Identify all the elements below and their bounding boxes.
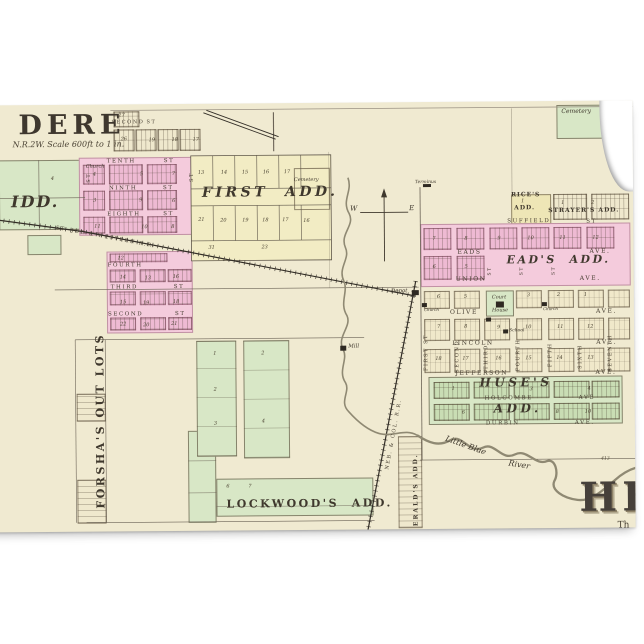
map-label: EIGHTH	[107, 212, 140, 218]
map-label: 12	[118, 256, 124, 261]
map-label: 5	[140, 172, 143, 177]
map-label: 13	[145, 276, 151, 281]
map-label: ST	[174, 285, 185, 291]
building-marker	[412, 290, 419, 295]
map-label: 22	[120, 322, 126, 327]
map-label: 12	[592, 236, 598, 241]
map-label: Depot	[391, 289, 408, 295]
building-marker	[486, 318, 491, 322]
map-label: 9	[139, 198, 142, 203]
map-label: 17	[284, 170, 290, 175]
map-label: HOLCOMBE	[485, 396, 533, 402]
map-label: RICE'S	[511, 192, 540, 198]
building-marker	[340, 346, 346, 351]
compass-west-label: W	[350, 205, 357, 213]
map-label: 13	[587, 356, 593, 361]
map-label: Church	[424, 308, 439, 312]
map-label: ADD.	[514, 205, 535, 211]
map-label: 3	[93, 199, 96, 204]
map-label: 18	[172, 138, 178, 143]
map-label: 20	[143, 323, 149, 328]
map-label: 10	[141, 225, 147, 230]
map-label: 15	[242, 170, 248, 175]
map-label: 10	[527, 236, 533, 241]
map-label: AVE.	[575, 421, 595, 427]
building-marker	[422, 303, 427, 307]
greeting-card: IDD.FIRST ADD.EAD'S ADD.HUSE'SADD.LOCKWO…	[0, 100, 636, 532]
map-label: AVE.	[596, 309, 617, 315]
map-label: STRAYER'S ADD.	[548, 208, 619, 215]
map-label: 1	[521, 199, 524, 204]
railroad-nebcol	[366, 281, 418, 531]
map-label: 12	[587, 325, 593, 330]
map-label: 11	[559, 236, 565, 241]
map-label: 18	[435, 357, 441, 362]
map-label: Court	[492, 295, 507, 300]
map-label: 6	[433, 265, 436, 270]
map-label: 4	[93, 173, 96, 178]
map-label: SIXTH	[578, 344, 583, 369]
map-label: 15	[525, 356, 531, 361]
map-label: 19	[149, 138, 155, 143]
map-label: 16	[495, 356, 501, 361]
map-label: 16	[173, 275, 179, 280]
map-label: FOURTH	[108, 263, 143, 269]
map-label: OLIVE	[450, 310, 478, 316]
map-label: 2	[261, 351, 264, 356]
map-label: 6	[437, 295, 440, 300]
map-label: 3	[214, 422, 217, 427]
map-label: IDD.	[11, 194, 59, 210]
map-label: ERALD'S ADD.	[413, 453, 420, 526]
map-label: 14	[221, 171, 227, 176]
map-label: UNION	[456, 277, 487, 283]
map-label: 6	[172, 199, 175, 204]
map-label: 17	[462, 357, 468, 362]
map-label: NINTH	[109, 186, 137, 192]
map-label: HUSE'S	[479, 376, 552, 389]
map-label: Cemetery	[561, 109, 591, 115]
map-label: School	[509, 329, 524, 334]
map-label: ST	[586, 220, 597, 226]
map-label: 19	[242, 218, 248, 223]
map-label: 7	[437, 325, 440, 330]
building-marker	[542, 302, 547, 306]
map-label: 4	[262, 419, 265, 424]
map-title: DERE	[18, 109, 125, 141]
map-label: 5	[465, 265, 468, 270]
map-label: 1	[561, 201, 564, 206]
map-label: SEVENTH	[608, 334, 613, 372]
map-label: FORSHA'S OUT LOTS	[94, 333, 106, 509]
map-label: ST	[190, 172, 195, 182]
map-label: 1	[452, 387, 455, 392]
map-label: ST	[175, 312, 186, 318]
map-label: 1	[584, 293, 587, 298]
map-label: 14	[120, 275, 126, 280]
map-sheet: IDD.FIRST ADD.EAD'S ADD.HUSE'SADD.LOCKWO…	[0, 100, 636, 532]
map-label: 21	[198, 218, 204, 223]
map-label: 8	[556, 410, 559, 415]
map-label: 8	[171, 225, 174, 230]
map-label: 7	[172, 172, 175, 177]
map-label: SECOND	[108, 312, 143, 318]
map-label: 15	[120, 300, 126, 305]
map-label: 18	[262, 218, 268, 223]
map-label: 8	[464, 237, 467, 242]
map-label: 3	[530, 387, 533, 392]
map-label: 7	[432, 237, 435, 242]
map-label: 4	[51, 177, 54, 182]
map-label: ST	[553, 266, 558, 275]
map-label: 31	[208, 246, 214, 251]
map-label: FIRST ADD.	[202, 185, 339, 200]
map-label: Cemetery	[294, 178, 319, 183]
map-label: 2	[591, 201, 594, 206]
map-label: 23	[261, 245, 267, 250]
map-label: SECOND	[455, 340, 460, 373]
map-label: FIRST ST	[424, 334, 429, 371]
map-label: House	[492, 308, 508, 313]
map-label: THIRD	[484, 344, 489, 369]
map-label: EADS	[457, 250, 481, 256]
map-label: Church	[543, 307, 558, 311]
map-label: FOURTH	[516, 339, 521, 372]
building-marker	[496, 301, 504, 307]
map-label: TENTH	[107, 159, 136, 165]
map-label: 2	[557, 293, 560, 298]
map-label: 19	[143, 301, 149, 306]
map-label: Church	[86, 165, 105, 170]
town-name-letters: HE	[579, 473, 635, 521]
map-label: JEFFERSON	[455, 370, 508, 376]
map-label: ST	[146, 120, 156, 125]
map-label: LOCKWOOD'S ADD.	[226, 497, 392, 509]
map-label: ST	[489, 266, 494, 275]
map-label: 3	[527, 293, 530, 298]
map-label: 8	[464, 325, 467, 330]
map-label: 9	[497, 236, 500, 241]
map-label: 11	[94, 225, 100, 230]
map-label: FIFTH	[548, 342, 553, 367]
map-label: 6	[462, 411, 465, 416]
map-label: ST	[163, 186, 174, 192]
creek	[340, 177, 417, 436]
map-label: 2	[214, 388, 217, 393]
map-label: 9	[497, 325, 500, 330]
map-label: 10	[525, 325, 531, 330]
compass-rose	[360, 188, 409, 261]
map-scale-note: N.R.2W. Scale 600ft to 1 in.	[13, 139, 125, 149]
map-label: AVE.	[589, 249, 610, 255]
map-label: 16	[263, 170, 269, 175]
map-label: ST	[87, 173, 92, 183]
map-label: ST	[164, 159, 175, 165]
map-label: 7	[248, 484, 251, 489]
map-label: 18	[173, 300, 179, 305]
map-label: 17	[282, 218, 288, 223]
map-label: AVE.	[580, 276, 601, 282]
map-label: 16	[303, 219, 309, 224]
map-label: DURBIN	[486, 421, 520, 427]
map-label: 20	[220, 219, 226, 224]
map-label: 1	[213, 352, 216, 357]
map-label: 4	[588, 387, 591, 392]
map-label: 5	[464, 295, 467, 300]
map-label: ST	[521, 266, 526, 275]
map-label: AVE	[579, 396, 596, 402]
map-label: 14	[556, 356, 562, 361]
caption-fragment: Th	[618, 520, 630, 530]
compass-east-label: E	[409, 204, 414, 212]
map-label: EAD'S ADD.	[507, 254, 611, 266]
map-label: 21	[171, 322, 177, 327]
map-label: SUFFIELD	[507, 219, 550, 225]
map-label: THIRD	[111, 285, 138, 291]
map-label: 413	[601, 458, 610, 463]
building-marker	[503, 329, 508, 333]
map-label: 10	[585, 410, 591, 415]
map-label: 6	[226, 485, 229, 490]
map-label: ST	[163, 212, 174, 218]
map-label: Mill	[348, 345, 359, 351]
map-label: 13	[198, 171, 204, 176]
map-label: 11	[557, 325, 563, 330]
map-label: 17	[193, 138, 199, 143]
building-marker	[423, 184, 431, 187]
map-label: ADD.	[494, 402, 542, 414]
